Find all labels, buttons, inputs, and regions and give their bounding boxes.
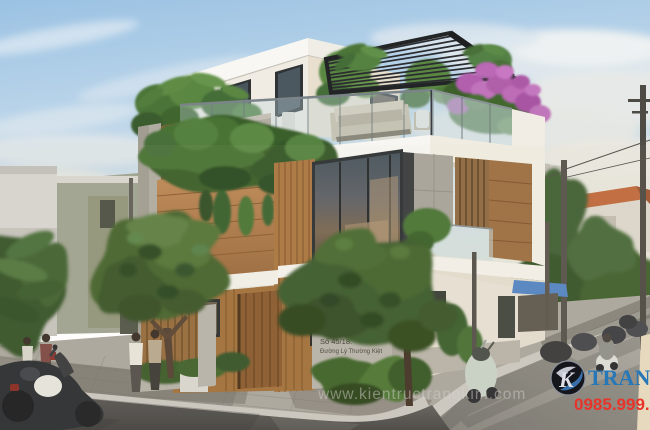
svg-text:0985.999.89: 0985.999.89: [574, 395, 650, 414]
svg-text:K: K: [558, 367, 575, 392]
svg-text:www.kientructrangkim.com: www.kientructrangkim.com: [317, 386, 526, 403]
svg-text:TRANG: TRANG: [588, 365, 650, 390]
